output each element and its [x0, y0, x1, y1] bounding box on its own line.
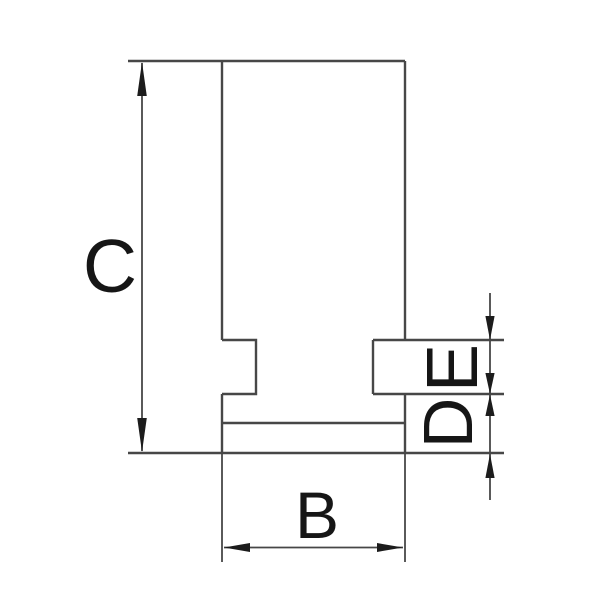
- arrow-b-right: [377, 543, 403, 552]
- arrow-e-top: [485, 316, 494, 340]
- arrow-d-bottom: [485, 454, 494, 478]
- dim-label-b: B: [295, 478, 339, 552]
- dim-label-d: D: [409, 398, 487, 449]
- drawing-canvas: C B E D: [0, 0, 600, 600]
- arrow-b-left: [224, 543, 250, 552]
- dim-label-e: E: [413, 344, 493, 392]
- arrow-c-bottom: [137, 418, 147, 452]
- left-notch: [222, 340, 256, 394]
- arrow-c-top: [137, 62, 147, 96]
- dim-label-c: C: [83, 224, 137, 308]
- technical-drawing: C B E D: [0, 0, 600, 600]
